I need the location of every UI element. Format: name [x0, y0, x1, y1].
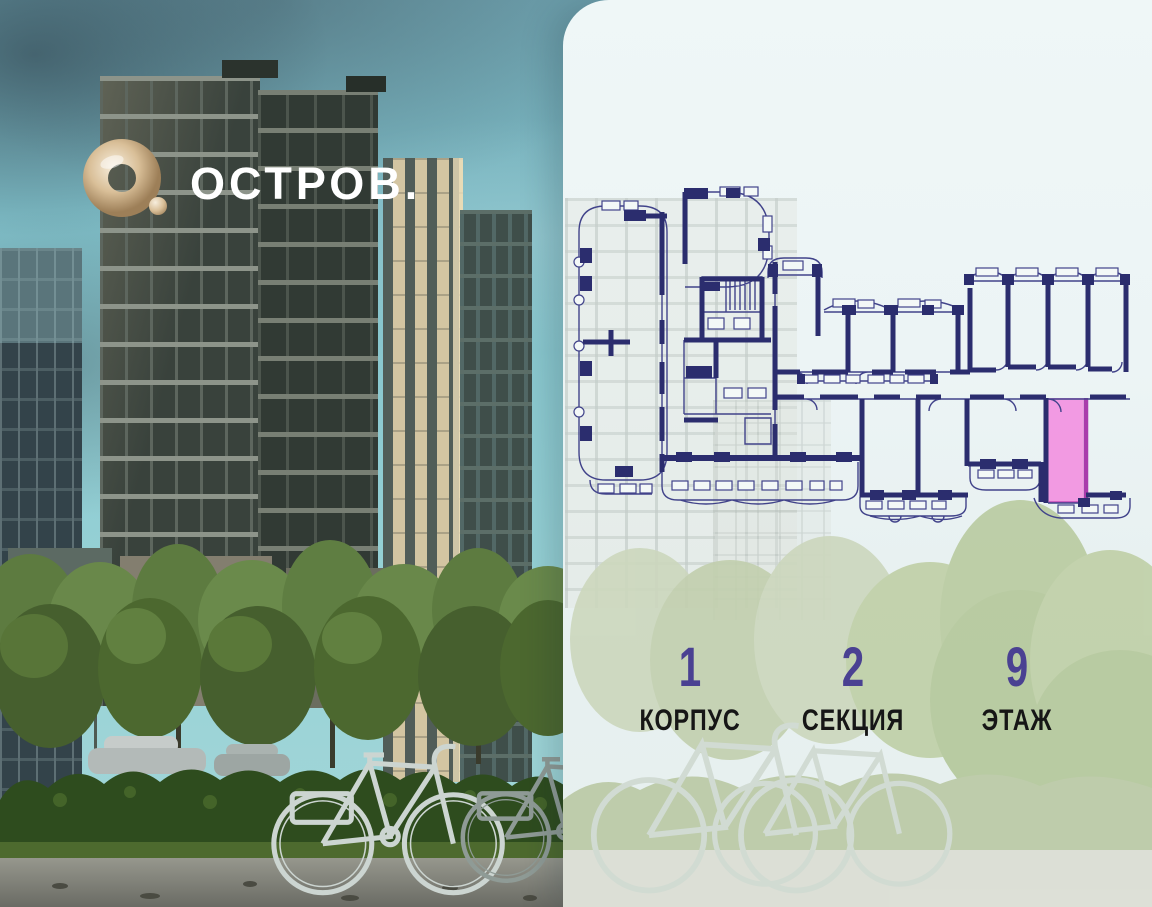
- foreground-greenery-and-bicycles: [0, 0, 584, 907]
- apartment-info-panel: 1 КОРПУС 2 СЕКЦИЯ 9 ЭТАЖ: [563, 0, 1152, 907]
- building-number: 1: [629, 638, 751, 696]
- floor-label: ЭТАЖ: [951, 704, 1084, 738]
- stat-floor: 9 ЭТАЖ: [932, 638, 1102, 738]
- logo-ring-icon: [82, 138, 192, 234]
- section-number: 2: [792, 638, 914, 696]
- selected-apartment-highlight[interactable]: [1049, 398, 1084, 502]
- section-label: СЕКЦИЯ: [787, 704, 920, 738]
- stat-building: 1 КОРПУС: [605, 638, 775, 738]
- floor-number: 9: [956, 638, 1078, 696]
- stat-section: 2 СЕКЦИЯ: [768, 638, 938, 738]
- logo-wordmark: ОСТРОВ.: [190, 158, 421, 210]
- ostrov-logo: ОСТРОВ.: [82, 138, 192, 234]
- building-label: КОРПУС: [624, 704, 757, 738]
